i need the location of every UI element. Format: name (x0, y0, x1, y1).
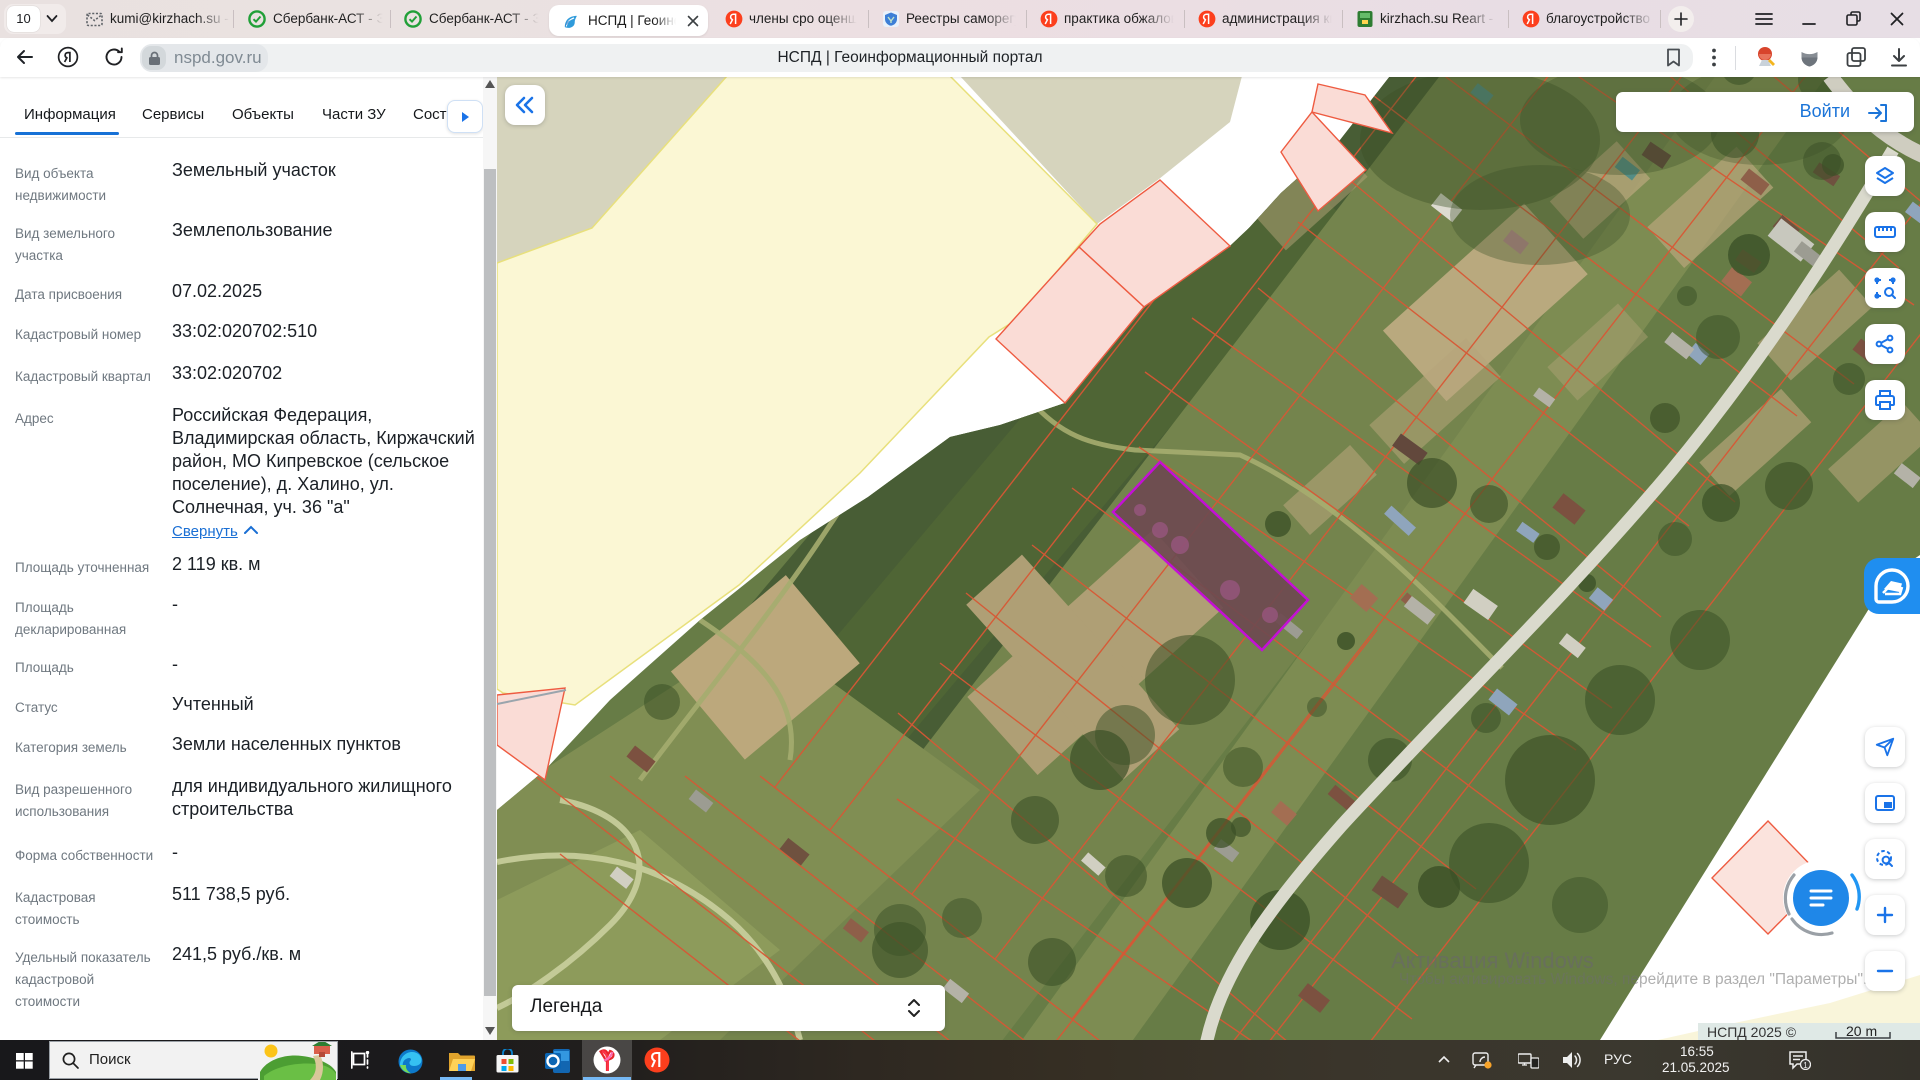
svg-text:1: 1 (1803, 1061, 1808, 1070)
